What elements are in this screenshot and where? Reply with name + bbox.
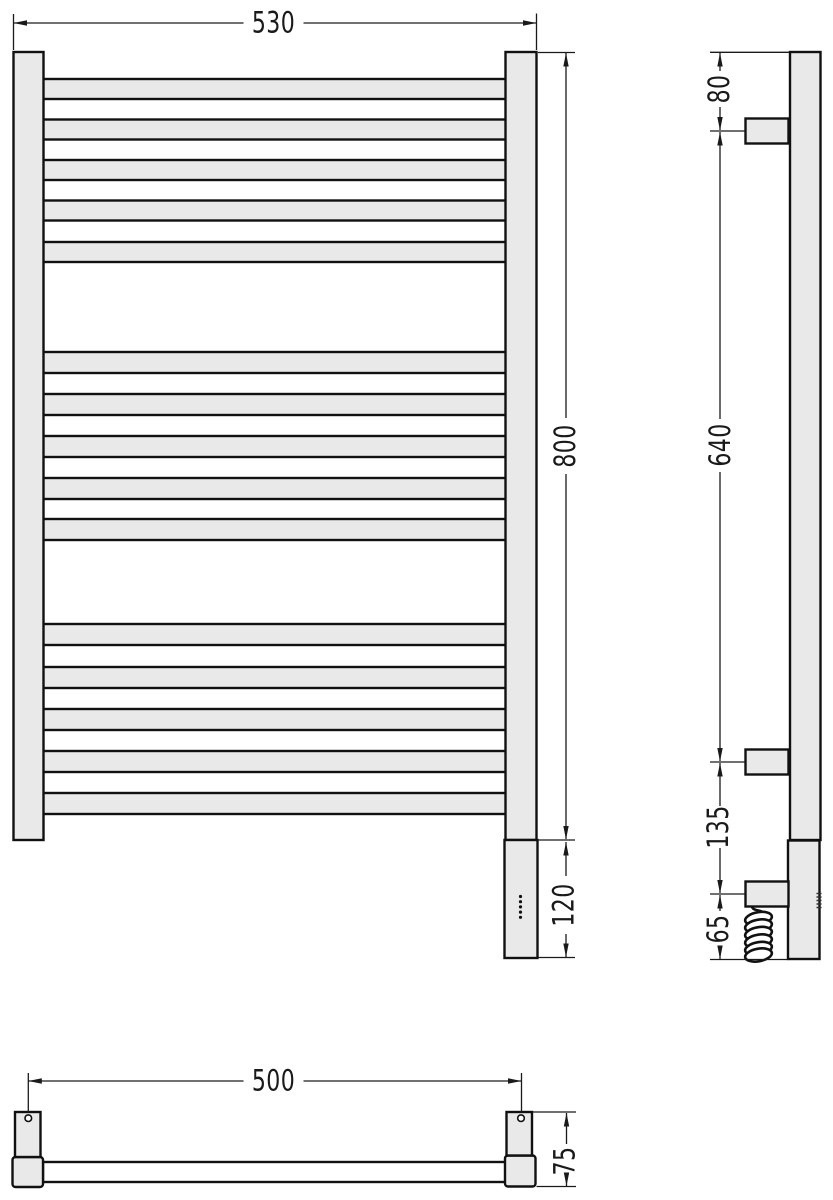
- front-right-post: [506, 52, 537, 840]
- rung: [43, 624, 506, 645]
- dimension-lower-gap-135: 135: [702, 763, 736, 894]
- plan-view: [13, 1112, 536, 1187]
- dim-800-label: 800: [549, 424, 583, 467]
- power-cable-coil: [744, 907, 773, 964]
- rung: [43, 436, 506, 457]
- dim-120-label: 120: [548, 883, 582, 926]
- dimension-height-800: 800: [538, 53, 583, 841]
- dim-75-label: 75: [549, 1147, 583, 1176]
- side-heater-housing: [788, 841, 820, 960]
- technical-drawing: 530 800 120: [0, 0, 833, 1200]
- indicator-dot: [519, 900, 522, 903]
- front-view: [14, 52, 538, 958]
- side-view: [744, 52, 821, 964]
- plan-right-screw-hole: [518, 1115, 525, 1122]
- dimension-heater-120: 120: [538, 842, 581, 958]
- dimension-bottom-offset-65: 65: [702, 895, 736, 959]
- dimension-bracket-span-640: 640: [704, 132, 738, 762]
- wall-bracket-middle: [746, 750, 789, 775]
- rung: [43, 394, 506, 415]
- indicator-dot: [519, 905, 522, 908]
- dim-530-label: 530: [252, 7, 295, 41]
- rung: [43, 160, 506, 180]
- dim-135-label: 135: [702, 805, 736, 848]
- rung: [43, 751, 506, 772]
- front-heater-housing: [505, 840, 538, 958]
- dim-500-label: 500: [252, 1065, 295, 1099]
- rung: [43, 519, 506, 540]
- dimension-mount-spacing-500: 500: [28, 1065, 521, 1113]
- dimension-top-offset-80: 80: [703, 53, 737, 131]
- rung: [43, 793, 506, 814]
- indicator-dot: [519, 911, 522, 914]
- rung: [43, 709, 506, 730]
- rung: [43, 120, 506, 140]
- dimension-depth-75: 75: [533, 1112, 582, 1187]
- indicator-dot: [519, 895, 522, 898]
- dimension-width-530: 530: [14, 7, 537, 50]
- wall-bracket-bottom: [746, 882, 789, 907]
- rung: [43, 478, 506, 499]
- plan-left-screw-hole: [25, 1115, 32, 1122]
- plan-left-foot: [13, 1157, 44, 1187]
- dim-65-label: 65: [702, 915, 736, 944]
- dim-80-label: 80: [703, 75, 737, 104]
- indicator-dot: [519, 916, 522, 919]
- rung: [43, 79, 506, 99]
- rung: [43, 201, 506, 221]
- front-left-post: [14, 52, 44, 840]
- rung: [43, 667, 506, 688]
- rung: [43, 242, 506, 262]
- plan-right-foot: [505, 1156, 536, 1187]
- plan-bar: [43, 1162, 506, 1182]
- rung: [43, 352, 506, 373]
- front-rungs: [43, 79, 506, 814]
- dim-640-label: 640: [704, 423, 738, 466]
- drawing-svg: 530 800 120: [0, 0, 833, 1200]
- wall-bracket-top: [746, 119, 789, 144]
- side-bar: [790, 52, 821, 840]
